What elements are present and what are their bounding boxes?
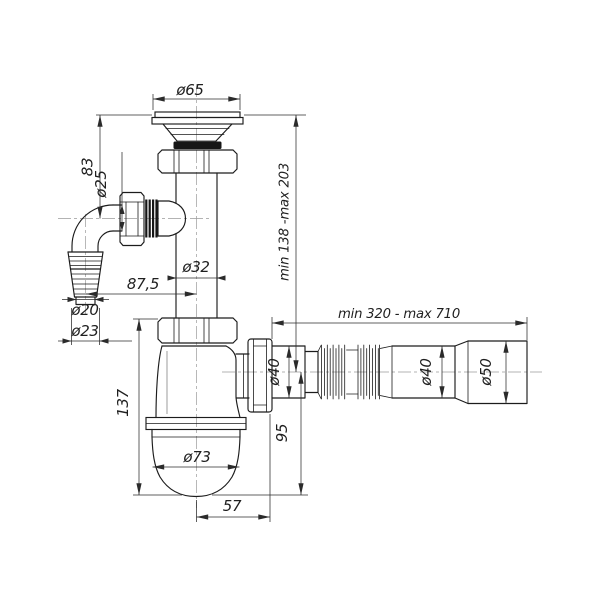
label-hose-barb-diameter: ø23	[70, 322, 98, 340]
dim-inlet-height-range: min 138 -max 203	[244, 115, 306, 372]
label-branch-pipe-diameter: ø25	[92, 170, 110, 198]
union-nut-bottom	[158, 318, 237, 343]
dim-cup-diameter: ø73	[153, 448, 240, 467]
siphon-technical-drawing: ø65 min 138 -max 203 83 ø25 ø32 87,5 ø20	[0, 0, 600, 600]
funnel	[163, 124, 232, 141]
dim-hose-tip-diameter: ø20	[62, 297, 109, 319]
label-inlet-height-range: min 138 -max 203	[278, 163, 293, 281]
union-nut-top	[158, 150, 237, 173]
trap-collar	[146, 418, 246, 430]
branch-elbow	[72, 205, 122, 252]
dim-outlet-offset: 57	[197, 414, 271, 522]
label-standpipe-diameter: ø32	[181, 258, 209, 276]
label-outlet-to-bottom: 95	[273, 424, 291, 443]
branch-nut	[120, 193, 144, 246]
centerlines	[58, 84, 542, 508]
label-outlet-diameter-1: ø40	[265, 358, 283, 386]
label-trap-height: 137	[114, 388, 132, 416]
label-outlet-diameter-2: ø40	[417, 358, 435, 386]
label-branch-offset: 87,5	[127, 275, 159, 293]
dim-trap-height: 137	[114, 319, 182, 495]
label-outlet-offset: 57	[223, 497, 242, 515]
label-flange-diameter: ø65	[175, 81, 203, 99]
dim-outlet-to-bottom: 95	[212, 372, 308, 495]
label-end-cuff-diameter: ø50	[477, 358, 495, 386]
gasket	[174, 142, 222, 150]
trap-body	[156, 346, 249, 418]
label-cup-diameter: ø73	[182, 448, 210, 466]
label-hose-tip-diameter: ø20	[70, 301, 98, 319]
dim-flange-diameter: ø65	[153, 81, 240, 110]
label-outlet-length-range: min 320 - max 710	[338, 307, 460, 322]
dim-outlet-diameter-1: ø40	[265, 346, 289, 398]
drawing-canvas: ø65 min 138 -max 203 83 ø25 ø32 87,5 ø20	[0, 0, 600, 600]
dim-branch-height: 83	[79, 115, 153, 219]
dim-end-cuff-diameter: ø50	[477, 341, 506, 404]
dim-outlet-length-range: min 320 - max 710	[272, 307, 527, 340]
sink-flange	[152, 112, 243, 124]
